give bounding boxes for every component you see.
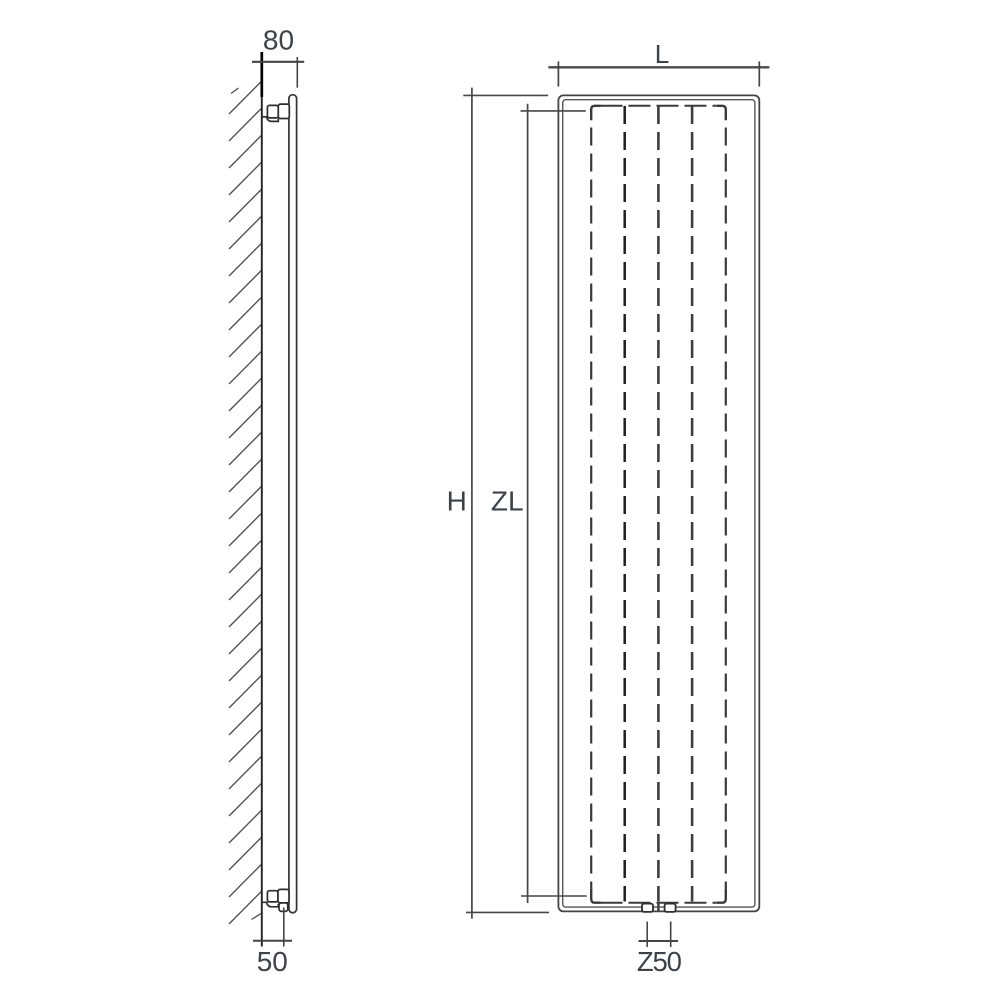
svg-text:H: H (447, 485, 467, 516)
svg-text:L: L (655, 39, 669, 69)
svg-text:50: 50 (257, 946, 288, 977)
svg-text:ZL: ZL (491, 485, 524, 516)
svg-text:80: 80 (263, 25, 294, 56)
svg-text:Z50: Z50 (637, 946, 682, 977)
